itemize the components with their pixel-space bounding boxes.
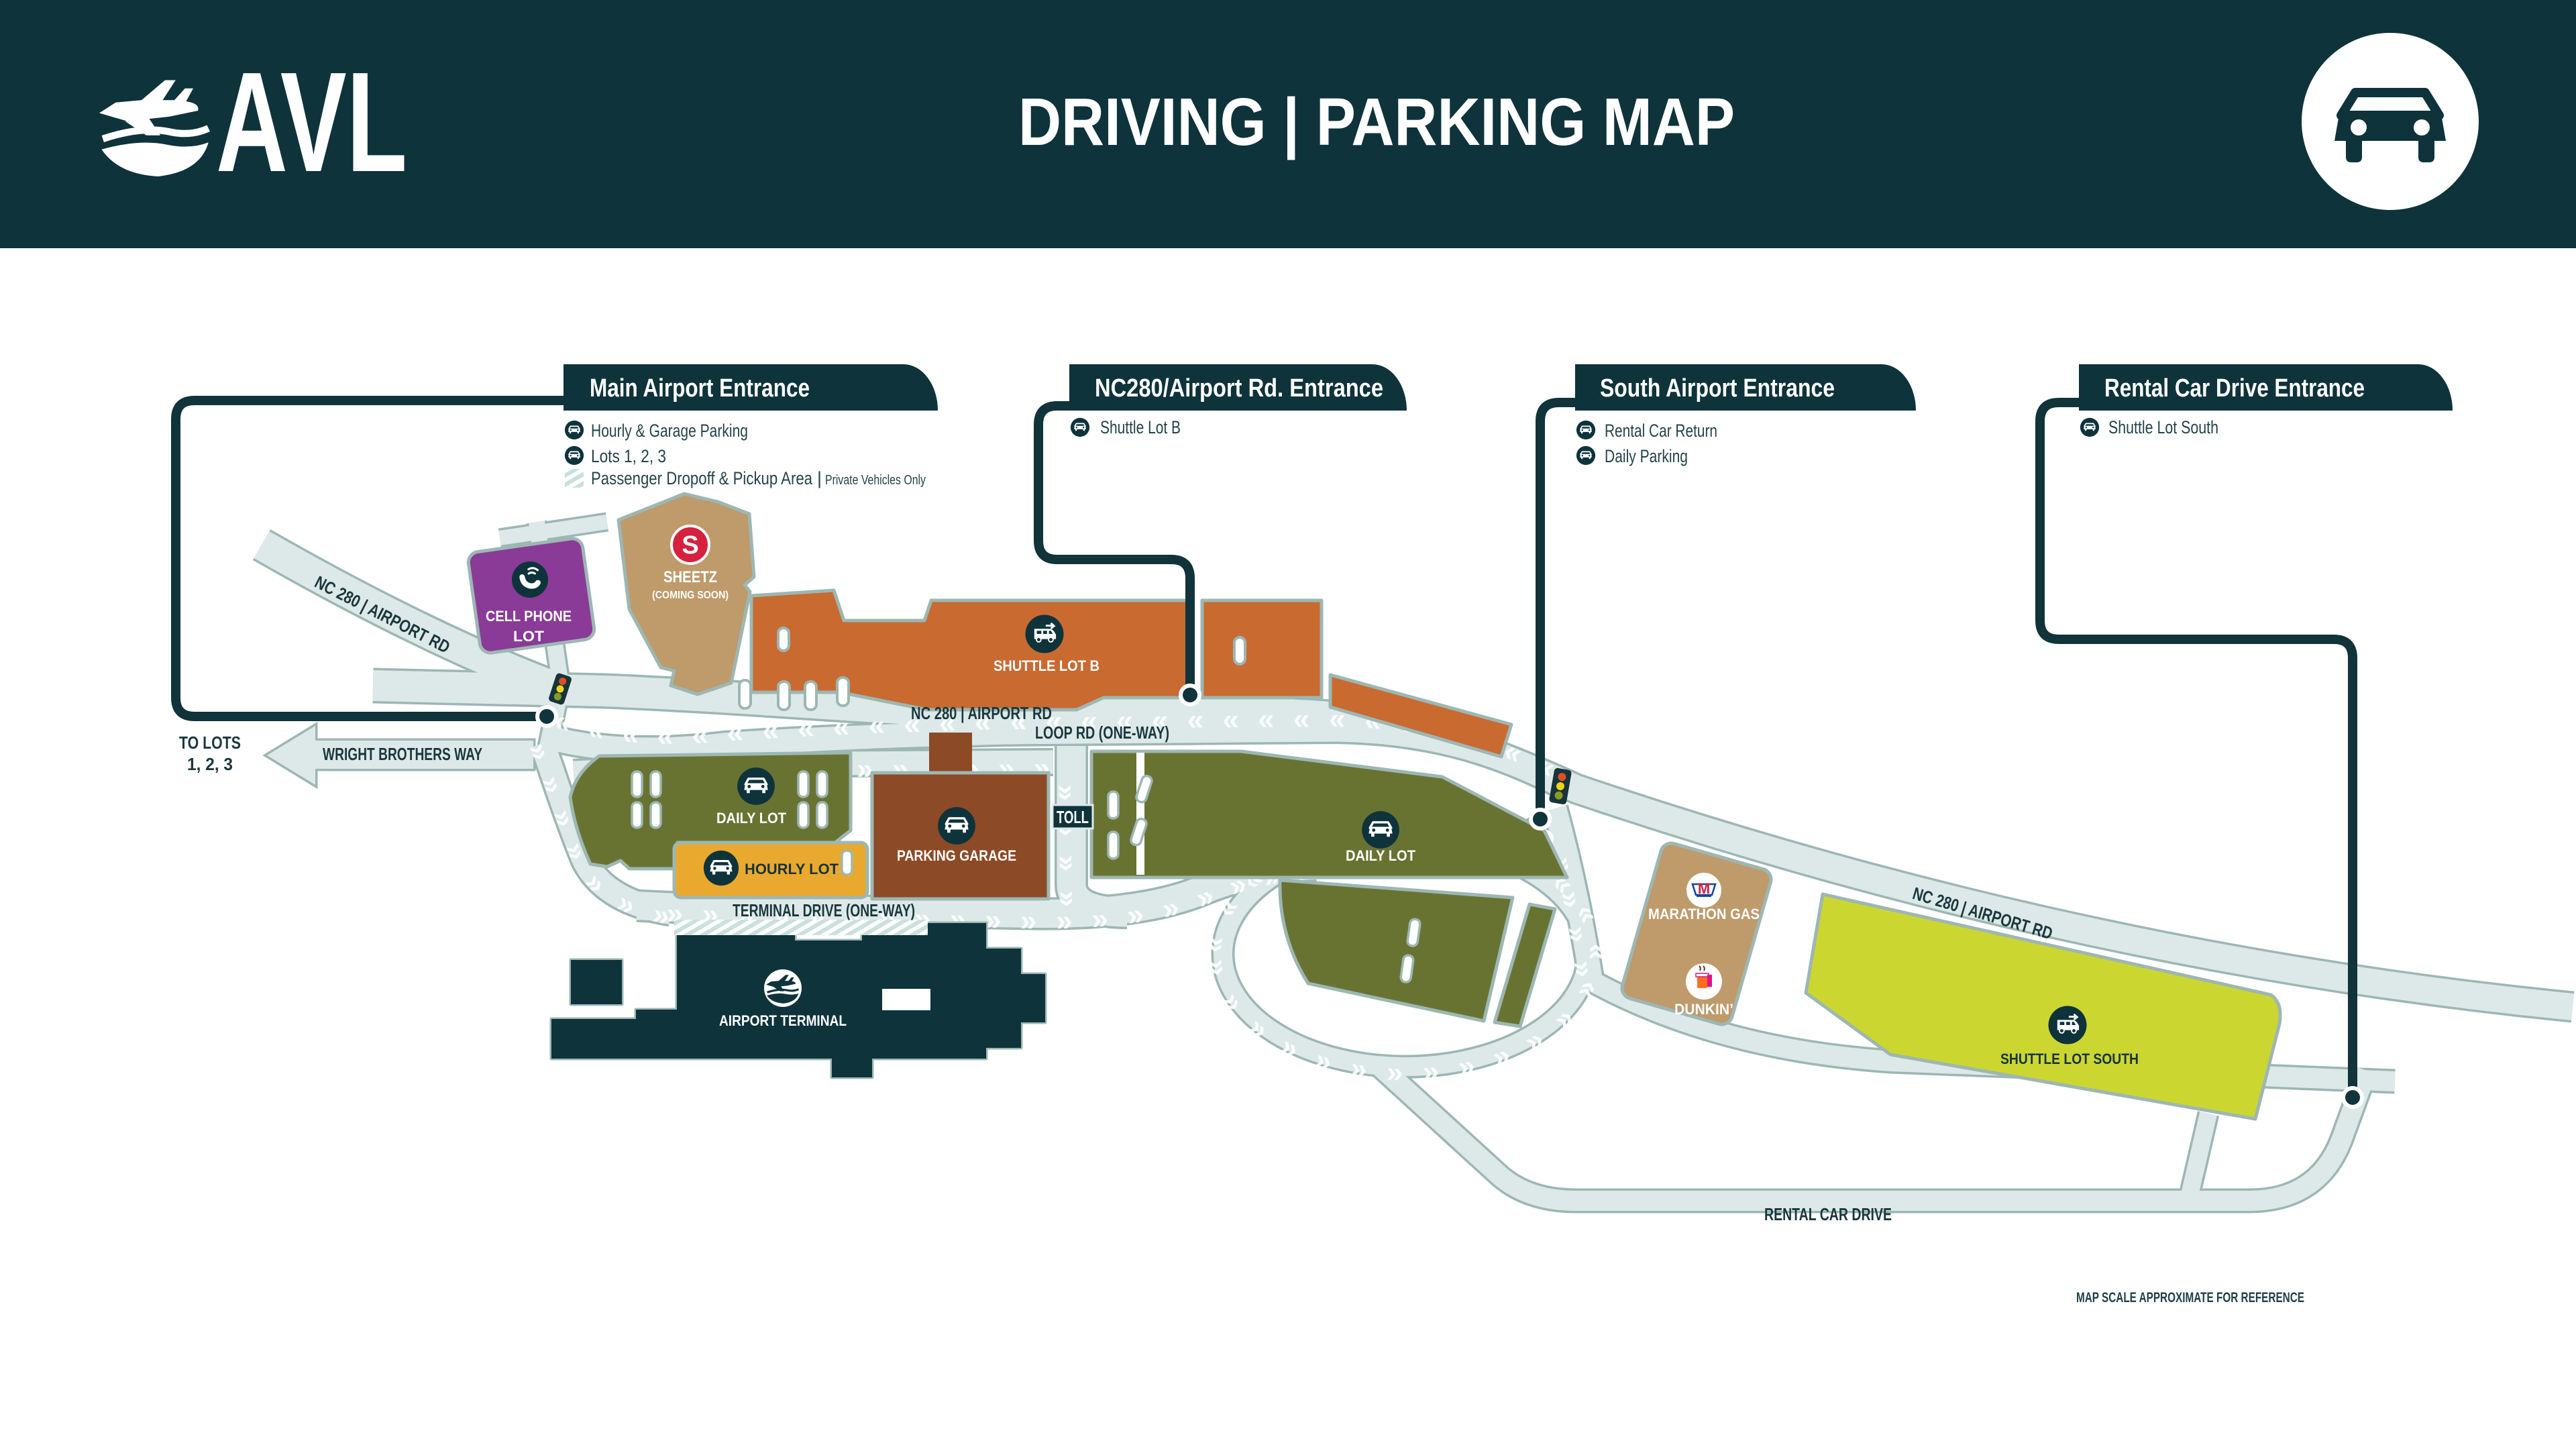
svg-text:TO LOTS: TO LOTS [179, 733, 241, 753]
svg-text:1, 2, 3: 1, 2, 3 [187, 754, 233, 774]
svg-text:DUNKIN’: DUNKIN’ [1674, 1001, 1733, 1018]
svg-text:NC 280 | AIRPORT RD: NC 280 | AIRPORT RD [311, 572, 453, 657]
svg-text:AIRPORT TERMINAL: AIRPORT TERMINAL [719, 1012, 847, 1029]
svg-text:LOT: LOT [513, 628, 545, 645]
svg-text:|: | [817, 468, 822, 488]
svg-text:RENTAL CAR DRIVE: RENTAL CAR DRIVE [1764, 1204, 1892, 1224]
svg-text:South Airport Entrance: South Airport Entrance [1600, 374, 1835, 402]
svg-text:CELL PHONE: CELL PHONE [486, 608, 572, 625]
svg-text:AVL: AVL [216, 42, 407, 201]
svg-text:Private Vehicles Only: Private Vehicles Only [825, 473, 926, 488]
svg-text:Shuttle Lot B: Shuttle Lot B [1100, 417, 1181, 437]
svg-text:M: M [1698, 880, 1710, 897]
svg-text:Shuttle Lot South: Shuttle Lot South [2108, 417, 2218, 437]
svg-text:NC 280 | AIRPORT RD: NC 280 | AIRPORT RD [911, 703, 1052, 723]
svg-text:DRIVING | PARKING MAP: DRIVING | PARKING MAP [1018, 85, 1735, 160]
svg-text:SHUTTLE LOT SOUTH: SHUTTLE LOT SOUTH [2000, 1051, 2139, 1067]
svg-text:S: S [682, 531, 698, 559]
svg-text:SHUTTLE LOT B: SHUTTLE LOT B [994, 657, 1099, 674]
svg-text:Main Airport Entrance: Main Airport Entrance [590, 374, 810, 402]
svg-text:« « « «: « « « « [1046, 779, 1081, 907]
svg-text:PARKING GARAGE: PARKING GARAGE [897, 847, 1016, 864]
svg-text:Rental Car Drive Entrance: Rental Car Drive Entrance [2104, 374, 2365, 402]
svg-text:MARATHON GAS: MARATHON GAS [1648, 906, 1760, 922]
svg-text:Daily Parking: Daily Parking [1605, 446, 1688, 466]
svg-text:LOOP RD (ONE-WAY): LOOP RD (ONE-WAY) [1035, 722, 1169, 743]
svg-text:HOURLY LOT: HOURLY LOT [745, 861, 839, 877]
svg-text:DAILY LOT: DAILY LOT [1346, 847, 1416, 864]
svg-text:DAILY LOT: DAILY LOT [716, 810, 787, 826]
svg-text:WRIGHT BROTHERS WAY: WRIGHT BROTHERS WAY [323, 744, 482, 764]
svg-text:TOLL: TOLL [1057, 807, 1089, 827]
svg-text:Rental Car Return: Rental Car Return [1605, 421, 1717, 441]
svg-text:Hourly & Garage Parking: Hourly & Garage Parking [591, 421, 748, 441]
svg-text:NC280/Airport Rd. Entrance: NC280/Airport Rd. Entrance [1095, 374, 1383, 402]
svg-text:TERMINAL DRIVE (ONE-WAY): TERMINAL DRIVE (ONE-WAY) [733, 900, 915, 920]
svg-text:SHEETZ: SHEETZ [663, 568, 717, 586]
svg-text:Lots 1, 2, 3: Lots 1, 2, 3 [591, 446, 666, 466]
svg-text:Passenger Dropoff & Pickup Are: Passenger Dropoff & Pickup Area [591, 468, 813, 488]
svg-text:MAP SCALE APPROXIMATE FOR REFE: MAP SCALE APPROXIMATE FOR REFERENCE [2076, 1290, 2304, 1305]
svg-text:(COMING SOON): (COMING SOON) [652, 590, 729, 601]
